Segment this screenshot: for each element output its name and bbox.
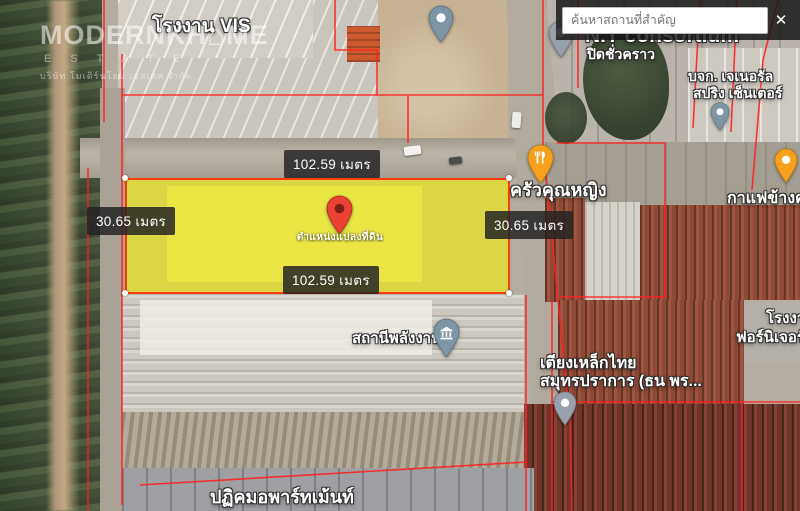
restaurant-pin-icon[interactable] — [774, 148, 798, 188]
label-nt-consortium-status: ปิดชั่วคราว — [587, 46, 655, 62]
white-roof — [585, 202, 640, 300]
label-general-spring-1[interactable]: บจก. เจเนอรัล — [688, 68, 773, 84]
map-pin-icon[interactable] — [710, 102, 730, 136]
house-icon: ⌂ — [207, 21, 226, 51]
dimension-label-right: 30.65 เมตร — [485, 211, 573, 239]
search-bar: ✕ — [556, 0, 800, 40]
watermark: MODERNKH⌂ME E S T A T E บริษัท โมเดิร์นโ… — [40, 20, 269, 83]
label-furniture-2[interactable]: ฟอร์นิเจอร์ บ — [736, 329, 800, 346]
watermark-brand-right: ME — [226, 20, 269, 51]
label-steel-bed-2[interactable]: สมุทรปราการ (ธน พร... — [540, 373, 702, 391]
plot-corner-dot — [506, 290, 512, 296]
search-input[interactable] — [562, 7, 768, 34]
orange-roof — [347, 26, 380, 62]
label-steel-bed-1[interactable]: เตียงเหล็กไทย — [540, 355, 637, 373]
label-krua-khunying[interactable]: ครัวคุณหญิง — [510, 180, 607, 201]
label-apartment[interactable]: ปฏิคมอพาร์ทเม้นท์ — [210, 487, 354, 508]
storage-yard — [122, 412, 524, 470]
building-pin-icon[interactable] — [433, 318, 460, 363]
plot-corner-dot — [122, 175, 128, 181]
map-pin-icon[interactable] — [428, 5, 454, 48]
map-pin-icon[interactable] — [553, 391, 577, 431]
satellite-map[interactable]: 102.59 เมตร 30.65 เมตร 30.65 เมตร 102.59… — [0, 0, 800, 511]
watermark-brand-left: MODERNKH — [40, 20, 207, 51]
label-coffee[interactable]: กาแฟข้างค — [727, 190, 800, 208]
vehicle — [511, 112, 521, 129]
dimension-label-bottom: 102.59 เมตร — [283, 266, 379, 294]
watermark-estate: E S T A T E — [44, 53, 269, 65]
trees — [545, 92, 587, 144]
dimension-label-left: 30.65 เมตร — [87, 207, 175, 235]
watermark-company: บริษัท โมเดิร์นโฮม เอสเตท จำกัด — [40, 69, 269, 83]
close-icon[interactable]: ✕ — [768, 11, 794, 29]
label-furniture-1[interactable]: โรงงา — [766, 310, 800, 327]
label-general-spring-2[interactable]: สปริง เซ็นเตอร์ — [693, 85, 782, 101]
label-energy-station[interactable]: สถานีพลังงาน — [352, 330, 441, 347]
plot-corner-dot — [122, 290, 128, 296]
rust-roof — [640, 205, 800, 302]
dimension-label-top: 102.59 เมตร — [284, 150, 380, 178]
plot-caption: ตำแหน่งแปลงที่ดิน — [282, 230, 398, 245]
